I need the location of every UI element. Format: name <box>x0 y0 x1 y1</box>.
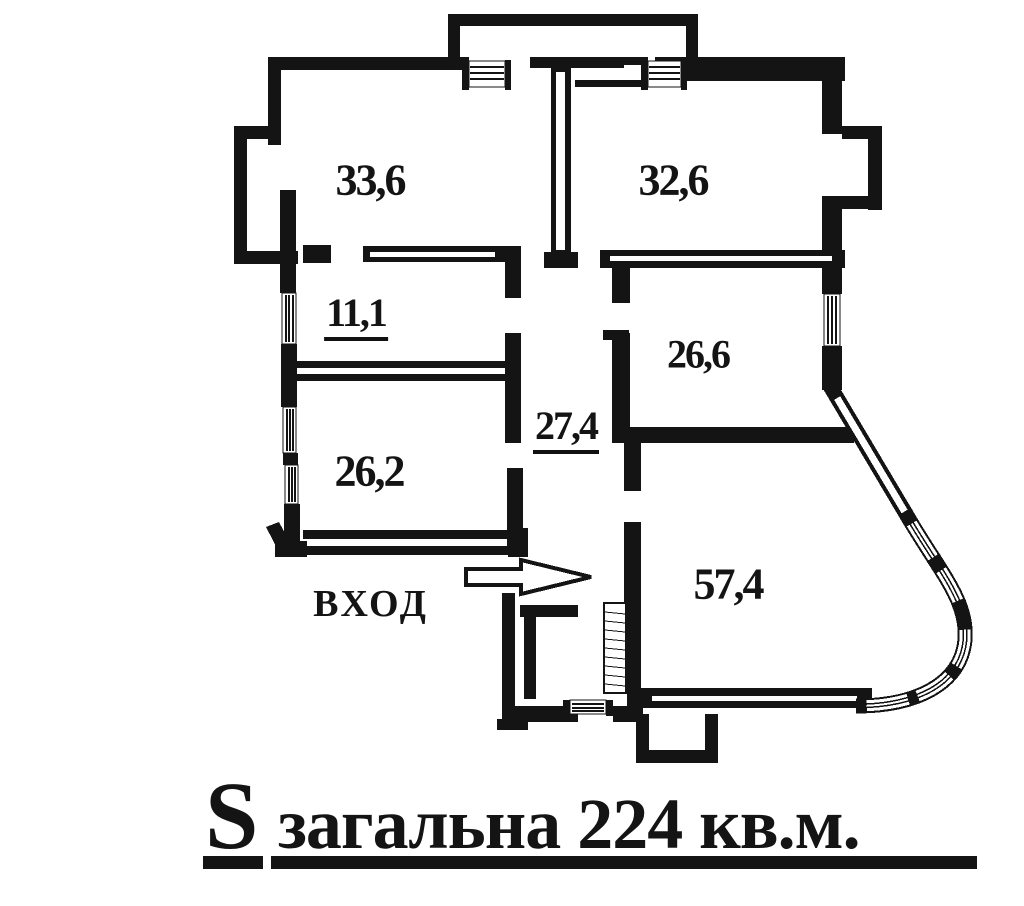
wall-segment <box>303 245 331 263</box>
wall-segment <box>624 522 641 608</box>
window-icon-left-2 <box>283 407 296 453</box>
wall-segment <box>627 607 641 719</box>
wall-segment <box>641 57 648 90</box>
curved-wall-outer <box>830 386 965 706</box>
curved-bay-wall <box>830 386 965 706</box>
caption-underline-long <box>271 856 977 869</box>
wall-segment <box>628 427 854 443</box>
window-icon-left-3 <box>285 465 298 504</box>
wall-segment <box>508 528 528 557</box>
wall-segment <box>502 593 515 717</box>
wall-segment <box>822 78 842 134</box>
wall-segment <box>606 700 613 716</box>
window-icon-vestibule <box>570 700 606 714</box>
wall-core <box>610 256 832 261</box>
wall-core <box>652 696 857 701</box>
wall-segment <box>462 57 469 90</box>
caption-area-symbol: S <box>205 768 258 864</box>
wall-core <box>370 252 495 257</box>
wall-segment <box>234 126 247 264</box>
wall-segment <box>505 333 521 443</box>
wall-segment <box>624 443 641 491</box>
wall-segment <box>234 126 281 139</box>
wall-segment <box>655 57 845 81</box>
wall-segment <box>296 361 521 368</box>
wall-segment <box>280 190 296 293</box>
room-area-label-26-6: 26,6 <box>667 331 729 378</box>
wall-segment <box>268 57 466 70</box>
room-area-label-32-6: 32,6 <box>639 155 708 206</box>
wall-segment <box>293 546 514 555</box>
window-icon-right-wall <box>824 294 840 346</box>
wall-segment <box>520 605 578 617</box>
caption-underline-short <box>203 856 263 869</box>
floorplan-page: 33,6 32,6 11,1 26,6 27,4 26,2 57,4 ВХОД … <box>0 0 1024 906</box>
floorplan-drawing <box>0 0 1024 906</box>
wall-segment <box>822 352 842 390</box>
wall-segment <box>524 617 536 699</box>
wall-segment <box>281 344 297 407</box>
wall-segment <box>822 196 842 294</box>
window-icon-left-1 <box>282 293 296 344</box>
wall-segment <box>603 330 629 340</box>
wall-segment <box>448 14 460 64</box>
wall-segment <box>448 14 698 26</box>
wall-segment <box>544 252 578 268</box>
wall-segment <box>612 333 630 443</box>
entrance-label: ВХОД <box>313 582 429 626</box>
room-area-label-57-4: 57,4 <box>694 559 763 610</box>
wall-segment <box>505 60 511 90</box>
room-area-label-33-6: 33,6 <box>336 155 405 206</box>
wall-segment <box>705 714 718 763</box>
room-area-label-26-2: 26,2 <box>335 446 404 497</box>
wall-segment <box>296 374 521 381</box>
caption-total-area: загальна 224 кв.м. <box>278 788 860 860</box>
wall-segment <box>303 530 513 539</box>
window-icon-top-left <box>469 61 505 87</box>
wall-segment <box>497 719 528 730</box>
wall-core <box>556 72 565 250</box>
room-area-label-27-4: 27,4 <box>533 402 599 454</box>
stairs-icon <box>604 603 626 693</box>
wall-segment <box>842 196 882 209</box>
entrance-arrow-icon <box>466 560 591 594</box>
wall-segment <box>575 80 647 87</box>
wall-segment <box>563 700 570 716</box>
wall-segment <box>505 257 521 298</box>
window-icon-top-right <box>648 61 681 87</box>
wall-segment <box>822 286 842 294</box>
wall-segment <box>686 14 698 64</box>
wall-segment <box>283 453 298 465</box>
room-area-label-11-1: 11,1 <box>324 289 388 341</box>
wall-segment <box>530 57 624 68</box>
